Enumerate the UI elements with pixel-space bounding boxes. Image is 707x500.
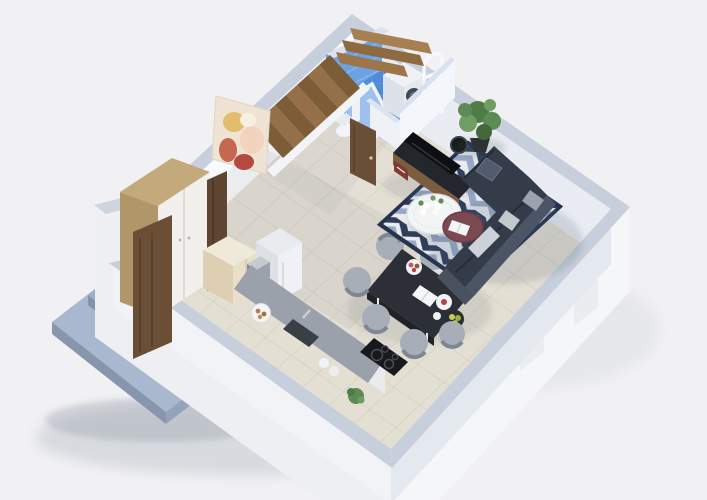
breakfast-plate — [252, 304, 271, 323]
side-table — [443, 212, 483, 242]
leaning-door — [133, 215, 172, 359]
counter-jar — [329, 366, 339, 376]
dining-chair — [400, 329, 428, 357]
dining-chair — [439, 321, 465, 347]
dining-chair — [343, 267, 371, 295]
plate-muffins — [406, 259, 422, 275]
floorplan-svg — [0, 0, 707, 500]
cup — [433, 312, 441, 320]
floorplan-render — [0, 0, 707, 500]
dining-chair — [362, 304, 390, 332]
counter-jar — [319, 358, 329, 368]
